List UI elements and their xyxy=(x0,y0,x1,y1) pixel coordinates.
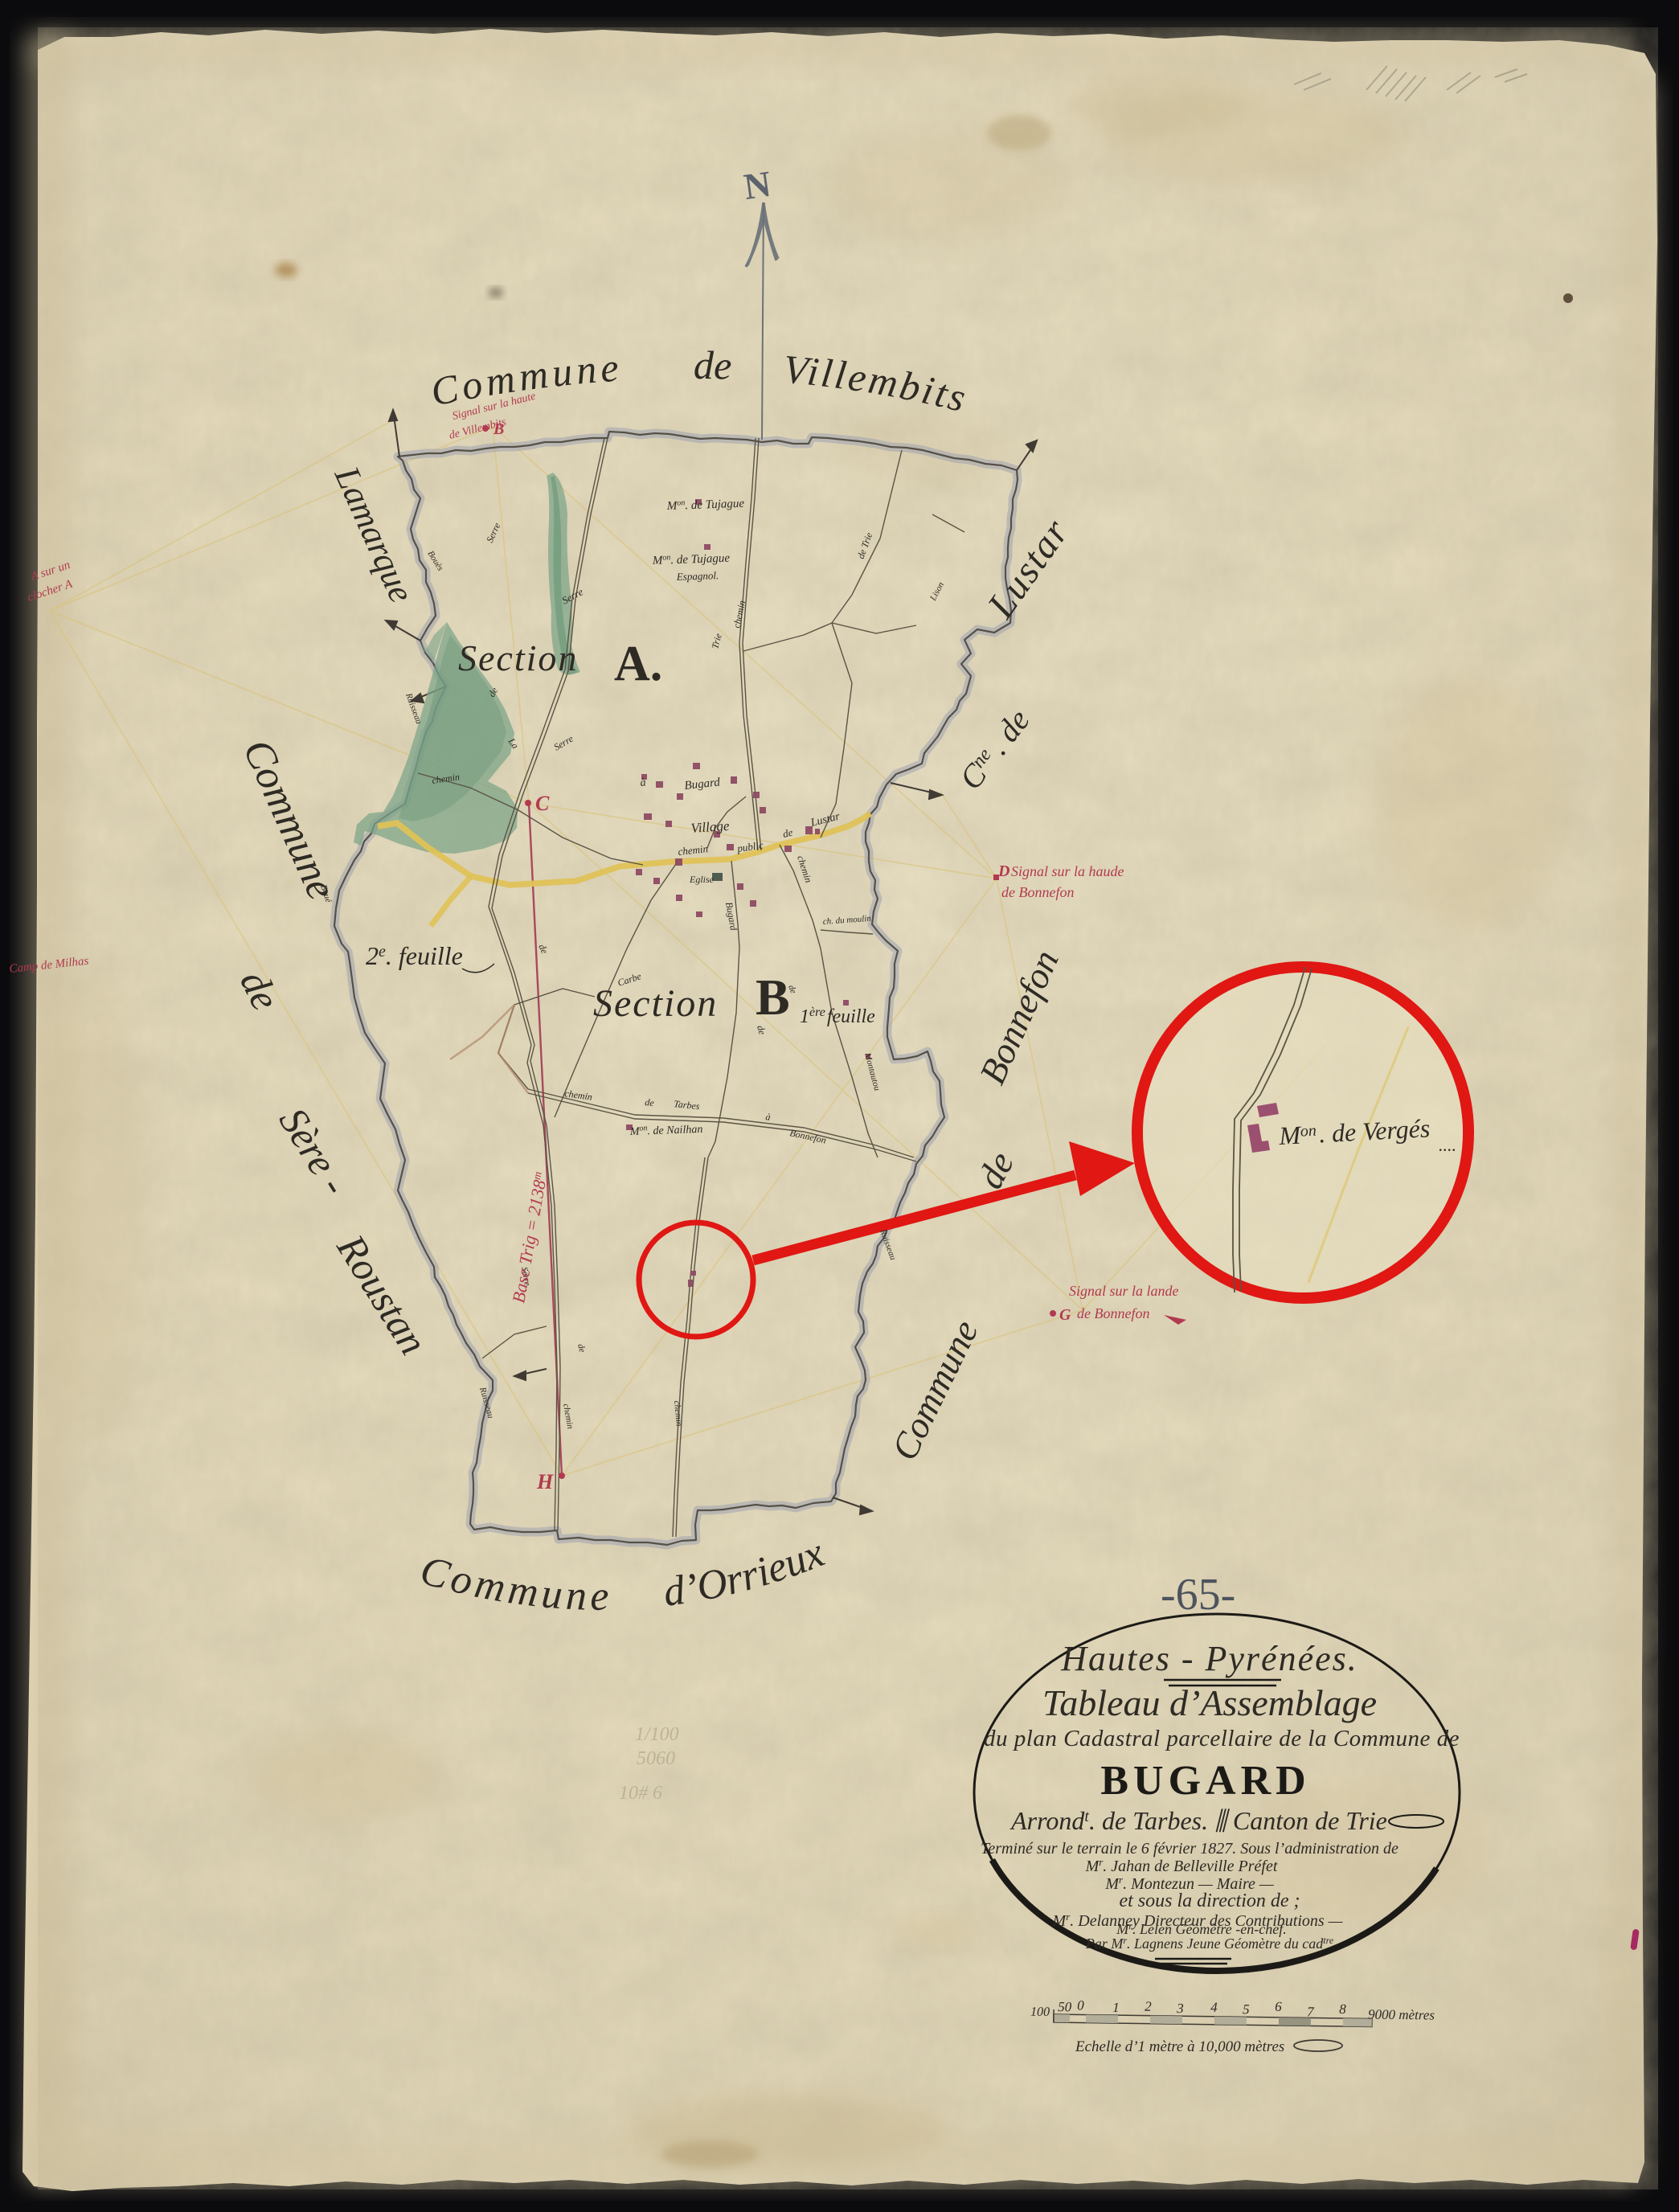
svg-text:5: 5 xyxy=(1243,2001,1250,2017)
svg-text:G: G xyxy=(1059,1306,1071,1324)
svg-text:N: N xyxy=(741,163,773,207)
svg-text:Tableau d’Assemblage: Tableau d’Assemblage xyxy=(1042,1682,1377,1723)
svg-text:2: 2 xyxy=(1145,1999,1152,2014)
svg-text:Section: Section xyxy=(593,982,718,1025)
svg-text:Mr. Lelen Géomètre -en-chef.: Mr. Lelen Géomètre -en-chef. xyxy=(1116,1920,1286,1937)
svg-text:Eglise: Eglise xyxy=(689,874,715,885)
svg-text:Village: Village xyxy=(690,818,730,836)
svg-text:1: 1 xyxy=(1112,2000,1120,2015)
svg-text:C: C xyxy=(535,792,550,815)
svg-text:H: H xyxy=(536,1470,554,1493)
svg-text:de: de xyxy=(694,342,733,388)
svg-text:Hautes - Pyrénées.: Hautes - Pyrénées. xyxy=(1060,1639,1358,1678)
svg-text:3: 3 xyxy=(1176,2001,1184,2016)
svg-text:4: 4 xyxy=(1210,2000,1218,2015)
svg-text:Espagnol.: Espagnol. xyxy=(676,569,719,583)
svg-text:0: 0 xyxy=(1077,1997,1084,2013)
svg-text:100: 100 xyxy=(1030,2005,1050,2019)
svg-text:Section: Section xyxy=(458,637,578,678)
svg-text:5060: 5060 xyxy=(637,1748,675,1769)
svg-text:50: 50 xyxy=(1058,1999,1072,2014)
svg-text:Mr. Jahan de Belleville Préfet: Mr. Jahan de Belleville Préfet xyxy=(1085,1856,1278,1875)
svg-text:Echelle d’1 mètre à 10,000: Echelle d’1 mètre à 10,000 mètres xyxy=(1075,2038,1284,2055)
svg-text:Par Mr. Lagnens Jeune Géomètre: Par Mr. Lagnens Jeune Géomètre du cadtre xyxy=(1085,1935,1334,1952)
svg-text:-65-: -65- xyxy=(1161,1570,1235,1620)
svg-text:et sous la direction de ;: et sous la direction de ; xyxy=(1119,1890,1300,1911)
svg-text:de: de xyxy=(645,1096,655,1108)
svg-text:BUGARD: BUGARD xyxy=(1100,1758,1310,1804)
svg-text:Signal sur la haude: Signal sur la haude xyxy=(1011,863,1124,879)
svg-text:6: 6 xyxy=(1275,1999,1282,2014)
svg-text:Signal sur la lande: Signal sur la lande xyxy=(1069,1283,1179,1299)
svg-text:10# 6: 10# 6 xyxy=(619,1783,662,1804)
svg-text:de Bonnefon: de Bonnefon xyxy=(1077,1305,1149,1321)
svg-text:Arrondt. de Tarbes. ⫼ Canton d: Arrondt. de Tarbes. ⫼ Canton de Trie xyxy=(1009,1806,1387,1835)
svg-text:B: B xyxy=(493,420,504,438)
svg-text:1/100: 1/100 xyxy=(635,1724,679,1745)
svg-text:9000 mètres: 9000 mètres xyxy=(1368,2006,1435,2022)
svg-text:A.: A. xyxy=(614,637,662,691)
svg-text:8: 8 xyxy=(1339,2001,1346,2017)
svg-text:Terminé sur le terrain le 6 fé: Terminé sur le terrain le 6 février 1827… xyxy=(981,1840,1398,1858)
svg-text:de Bonnefon: de Bonnefon xyxy=(1001,884,1074,900)
svg-text:....: .... xyxy=(1439,1135,1456,1155)
svg-text:D: D xyxy=(997,862,1009,880)
svg-text:du plan Cadastral parcellaire: du plan Cadastral parcellaire de la Comm… xyxy=(984,1726,1460,1751)
svg-text:B: B xyxy=(756,969,790,1026)
